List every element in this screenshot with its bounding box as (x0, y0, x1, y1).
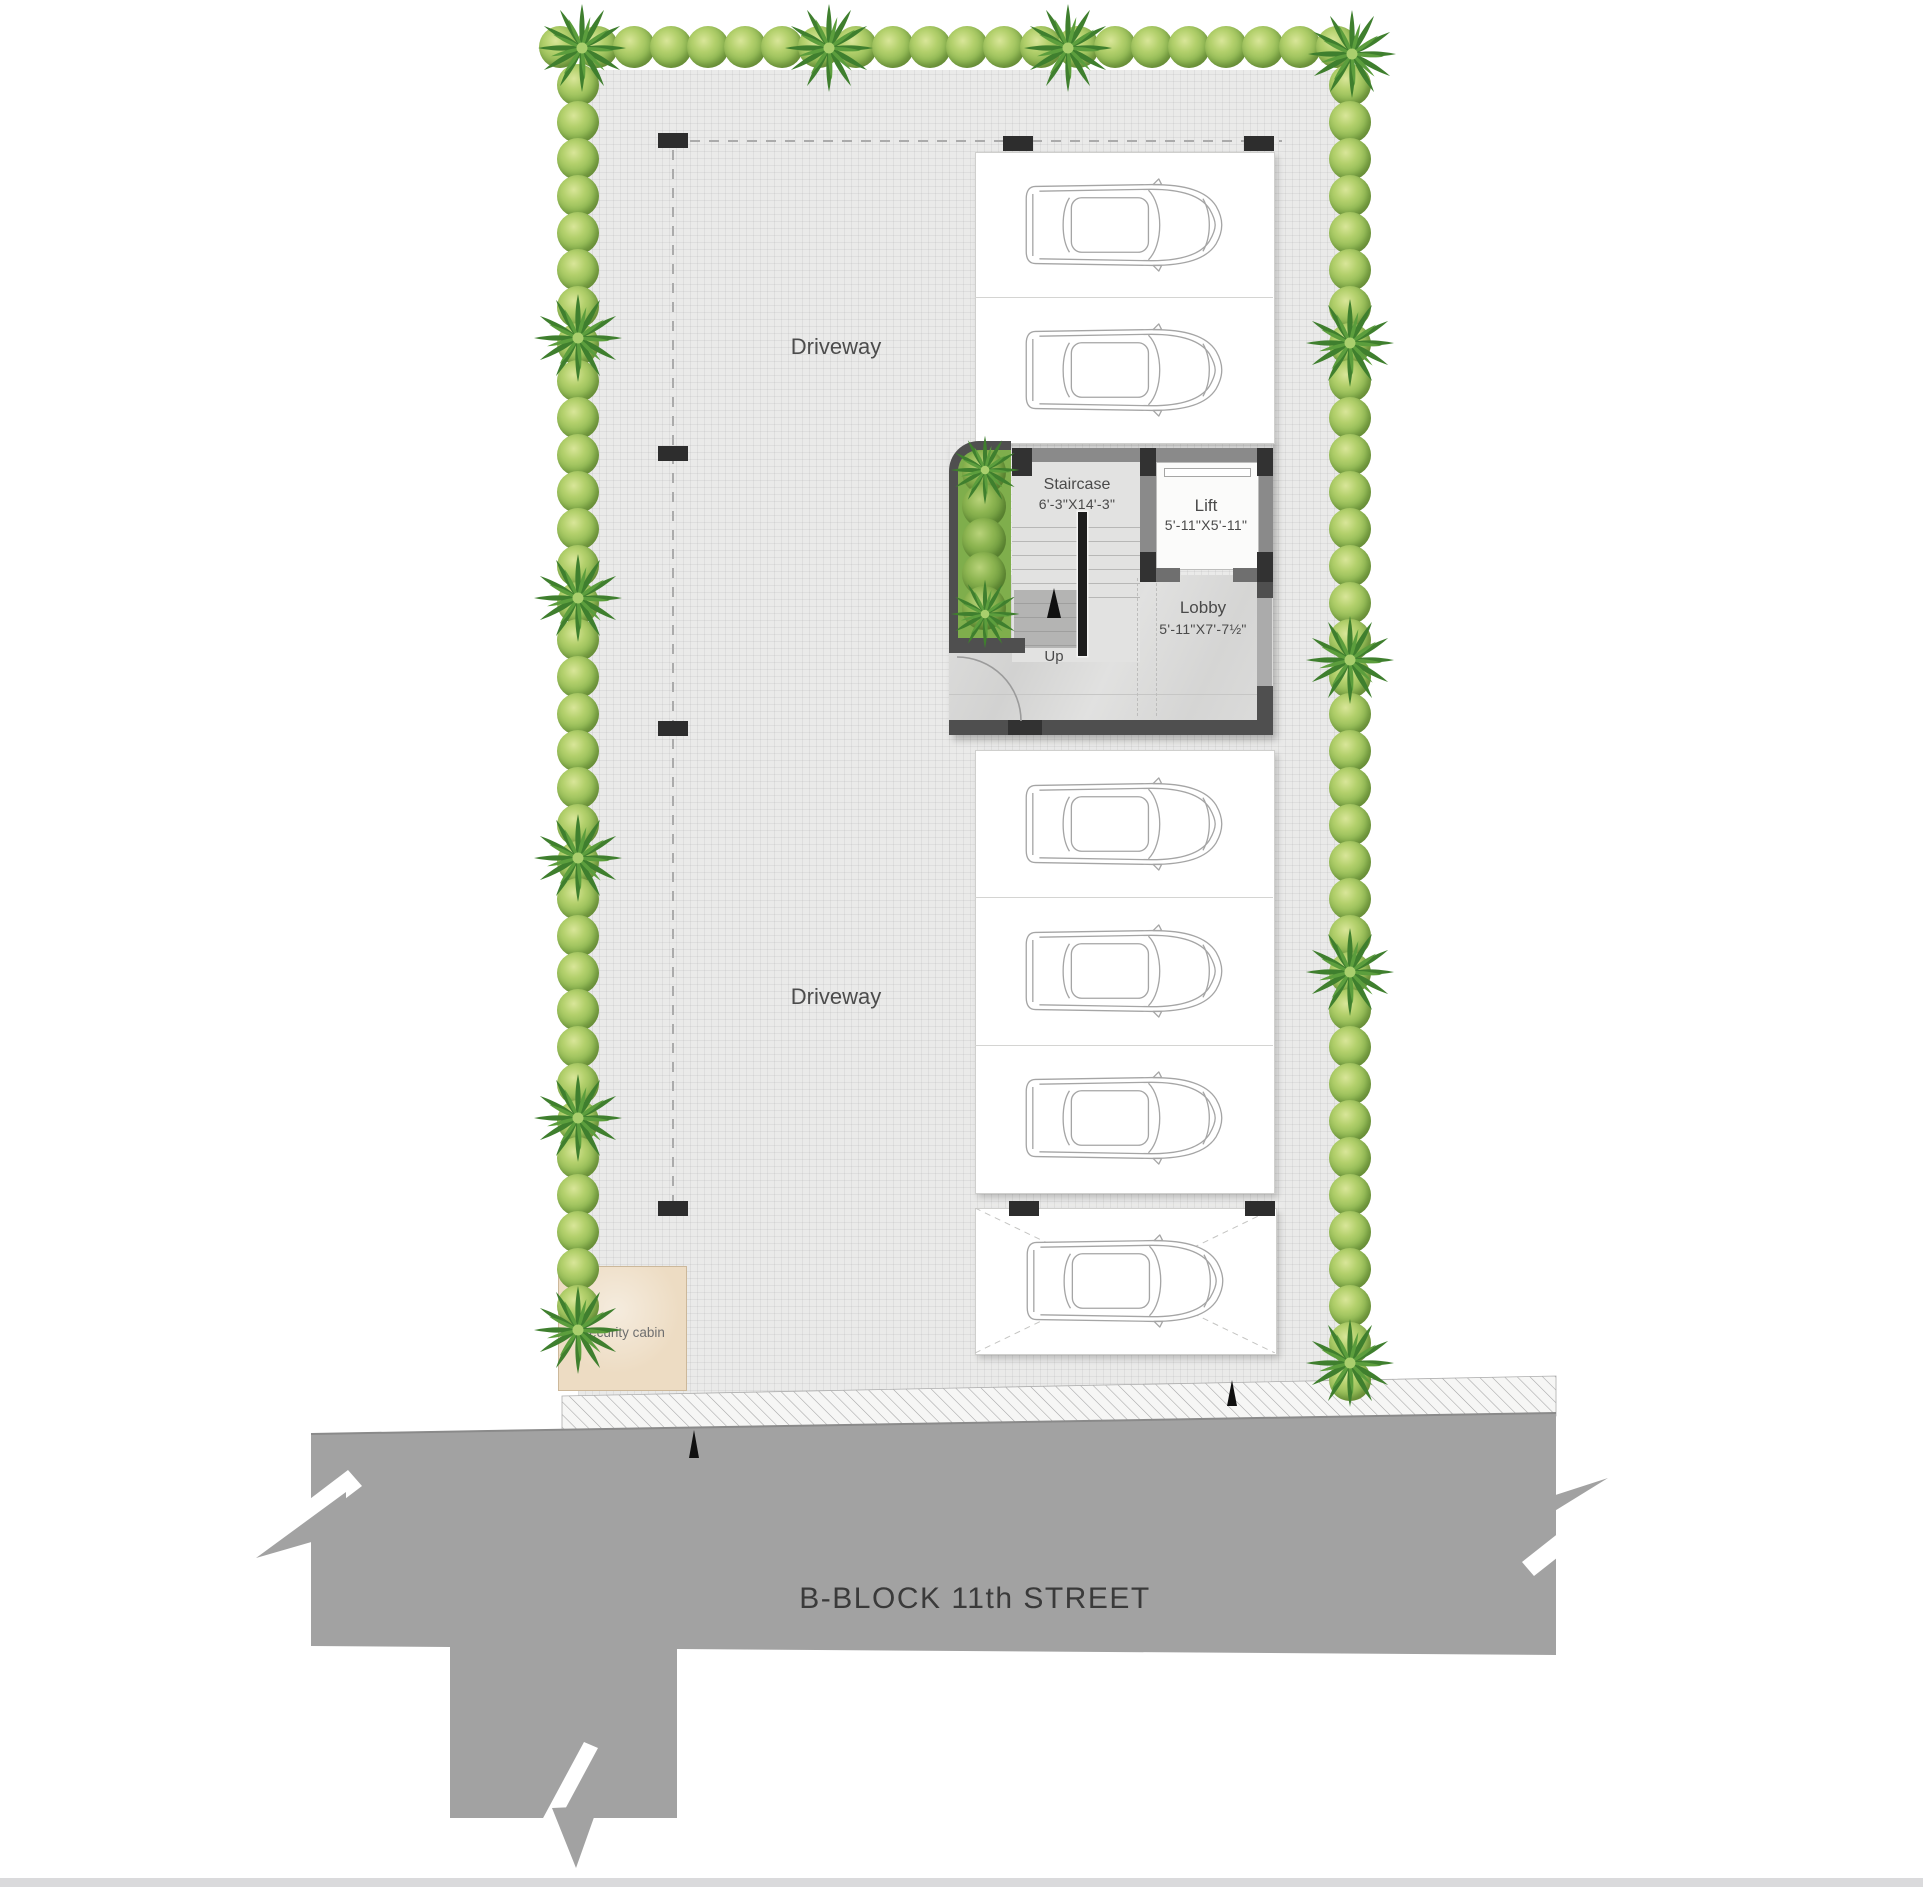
column-marker (1140, 448, 1156, 476)
parking-spot-divider (975, 897, 1273, 898)
palm-tree-icon (779, 0, 879, 98)
staircase-label: Staircase (1012, 476, 1142, 494)
palm-tree-icon (528, 548, 628, 648)
driveway-label-top: Driveway (736, 334, 936, 360)
driveway-label-bottom: Driveway (736, 984, 936, 1010)
site-plan: Security cabin Driveway Driveway Stairca… (0, 0, 1923, 1892)
parking-spot-divider (975, 1045, 1273, 1046)
wall (1032, 448, 1140, 462)
column-marker (1140, 552, 1156, 582)
palm-tree-icon (1300, 610, 1400, 710)
bush-icon (557, 656, 599, 698)
bush-icon (557, 508, 599, 550)
car-top-view-icon (1016, 178, 1232, 272)
bush-icon (1205, 26, 1247, 68)
palm-tree-icon (1300, 293, 1400, 393)
bush-icon (946, 26, 988, 68)
bush-icon (1329, 804, 1371, 846)
bush-icon (1329, 434, 1371, 476)
lift-wall (1257, 476, 1273, 552)
column-grid-line-horizontal (690, 140, 1282, 142)
staircase-dims: 6'-3"X14'-3" (1012, 496, 1142, 512)
lobby-dims: 5'-11"X7'-7½" (1128, 621, 1278, 637)
wall (1257, 686, 1273, 722)
bush-icon (1168, 26, 1210, 68)
bush-icon (1329, 249, 1371, 291)
bush-icon (650, 26, 692, 68)
bush-icon (557, 101, 599, 143)
staircase-railing (1078, 512, 1087, 656)
column-marker (658, 133, 688, 148)
column-marker (658, 721, 688, 736)
bush-icon (557, 212, 599, 254)
bush-icon (1329, 1137, 1371, 1179)
bush-icon (557, 730, 599, 772)
palm-tree-icon (528, 1068, 628, 1168)
bush-icon (557, 1026, 599, 1068)
bush-icon (557, 952, 599, 994)
bush-icon (557, 1211, 599, 1253)
palm-tree-icon (1302, 4, 1402, 104)
bush-icon (1329, 1174, 1371, 1216)
lift-wall-stub (1156, 568, 1180, 582)
stairs-up-label: Up (1028, 648, 1080, 665)
car-top-view-icon (1016, 777, 1232, 871)
bush-icon (1329, 101, 1371, 143)
bush-icon (1131, 26, 1173, 68)
bush-icon (557, 397, 599, 439)
palm-tree-icon (528, 808, 628, 908)
lobby-floor-seam (949, 694, 1273, 695)
bush-icon (557, 249, 599, 291)
column-marker (658, 1201, 688, 1216)
bush-icon (1329, 138, 1371, 180)
bush-icon (1329, 471, 1371, 513)
palm-tree-icon (1300, 1313, 1400, 1413)
lift-wall-stub (1233, 568, 1257, 582)
road-break-bottom-flap (552, 1806, 598, 1868)
bush-icon (724, 26, 766, 68)
bush-icon (557, 1174, 599, 1216)
bush-icon (557, 989, 599, 1031)
palm-tree-icon (1018, 0, 1118, 98)
bush-icon (1329, 730, 1371, 772)
car-top-view-icon (1016, 1071, 1232, 1165)
lift-door (1164, 468, 1251, 477)
column-marker (1008, 720, 1042, 735)
palm-tree-icon (528, 288, 628, 388)
bush-icon (1329, 878, 1371, 920)
bush-icon (1329, 508, 1371, 550)
column-marker (1244, 136, 1274, 151)
lift-label: Lift (1154, 496, 1258, 516)
bush-icon (1329, 545, 1371, 587)
palm-tree-icon (532, 0, 632, 98)
bush-icon (1329, 1063, 1371, 1105)
column-marker (1245, 1201, 1275, 1216)
bush-icon (1329, 841, 1371, 883)
lobby-label: Lobby (1140, 598, 1266, 618)
palm-tree-icon (946, 575, 1024, 653)
bush-icon (1329, 1211, 1371, 1253)
parking-spot-divider (975, 297, 1273, 298)
bush-icon (557, 915, 599, 957)
up-arrow-icon (1047, 588, 1061, 618)
lift-car (1156, 462, 1259, 570)
bush-icon (557, 693, 599, 735)
wall (1156, 448, 1258, 462)
page-bottom-rule (0, 1878, 1923, 1887)
palm-tree-icon (1300, 922, 1400, 1022)
column-grid-line-vertical (672, 150, 674, 1206)
bush-icon (1329, 1248, 1371, 1290)
bush-icon (1329, 397, 1371, 439)
palm-tree-icon (528, 1280, 628, 1380)
bush-icon (1242, 26, 1284, 68)
bush-icon (557, 175, 599, 217)
bush-icon (687, 26, 729, 68)
bush-icon (1329, 767, 1371, 809)
bush-icon (1329, 212, 1371, 254)
bush-icon (1329, 1100, 1371, 1142)
bush-icon (1329, 1026, 1371, 1068)
column-marker (658, 446, 688, 461)
bush-icon (557, 767, 599, 809)
column-marker (1257, 552, 1273, 582)
column-marker (1257, 448, 1273, 476)
car-top-view-icon (1016, 323, 1232, 417)
bush-icon (557, 471, 599, 513)
column-marker (1003, 136, 1033, 151)
street-name-label: B-BLOCK 11th STREET (675, 1582, 1275, 1616)
column-marker (1009, 1201, 1039, 1216)
bush-icon (557, 138, 599, 180)
bush-icon (909, 26, 951, 68)
bush-icon (1329, 175, 1371, 217)
bush-icon (557, 434, 599, 476)
wall (949, 720, 1273, 735)
car-top-view-icon (1016, 924, 1232, 1018)
car-top-view-icon (1017, 1234, 1233, 1328)
lift-dims: 5'-11"X5'-11" (1146, 517, 1266, 533)
